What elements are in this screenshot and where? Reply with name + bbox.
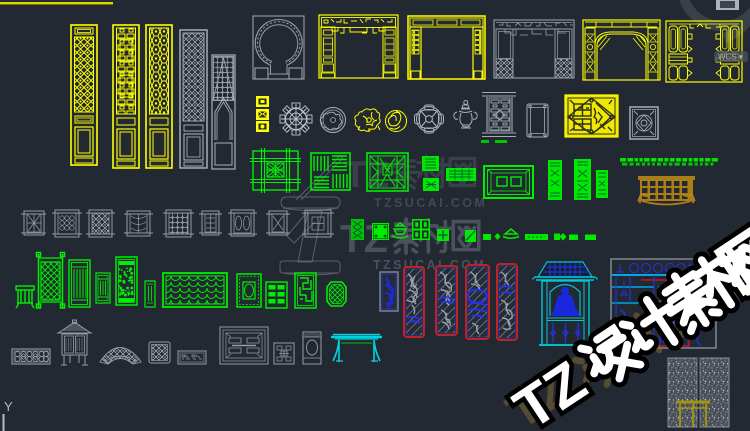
- svg-text:TZSUCAI.COM: TZSUCAI.COM: [374, 196, 487, 210]
- svg-text:WCS ▾: WCS ▾: [718, 53, 743, 62]
- svg-text:Y: Y: [4, 399, 13, 414]
